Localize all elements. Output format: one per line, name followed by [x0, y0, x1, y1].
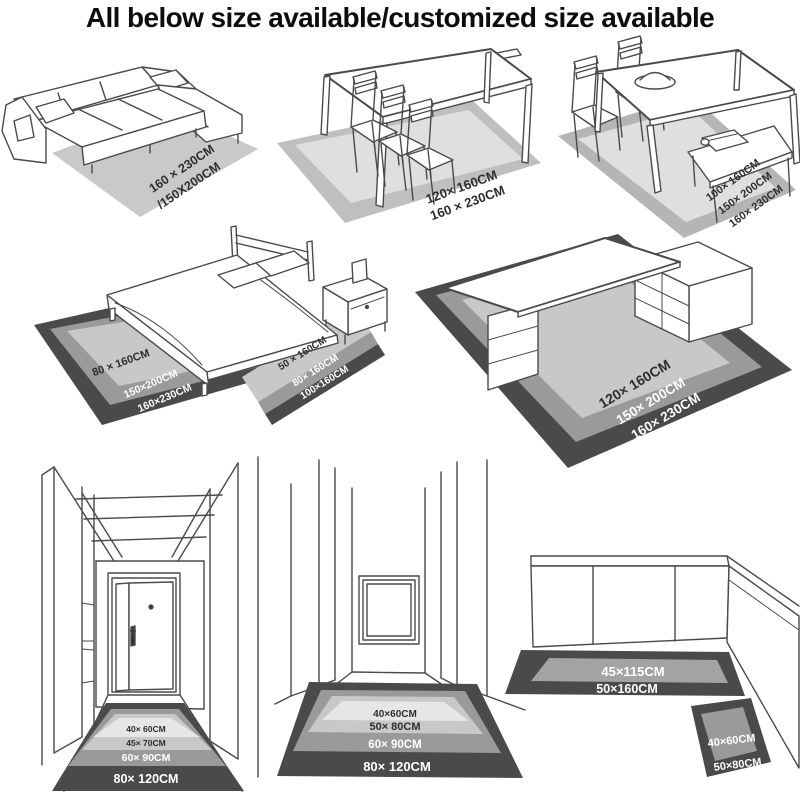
corridor-size-label-4: 80× 120CM — [363, 759, 431, 774]
bed-foot — [110, 308, 115, 321]
kitchen-runner-rug: 45×115CM 50×160CM — [505, 650, 745, 696]
hallway-size-label-1: 40× 60CM — [126, 724, 165, 734]
corridor-window-frame-inner — [367, 584, 411, 636]
table-leg — [734, 51, 741, 90]
table-leg — [522, 84, 532, 163]
scene-dining-table: 120× 160CM 160 × 230CM — [265, 45, 545, 242]
kitchen-mat-rug: 40×60CM 50×80CM — [691, 698, 771, 777]
kitchen-runner-size-label-2: 50×160CM — [596, 682, 658, 696]
scene-kitchen: 45×115CM 50×160CM 40×60CM 50×80CM — [505, 500, 800, 800]
corridor-size-label-3: 60× 90CM — [368, 739, 421, 751]
scene-bedroom: 80 × 160CM 150×200CM 160×230CM 50 × 160C… — [10, 225, 390, 440]
table-leg — [484, 52, 491, 103]
scene-living-room-sofa: 160 × 230CM /150X200CM — [0, 45, 270, 242]
corridor-size-label-1: 40×60CM — [373, 709, 417, 720]
hallway-size-label-2: 45× 70CM — [126, 738, 165, 748]
corridor-illustration — [275, 460, 525, 710]
bed-foot — [202, 383, 207, 396]
corridor-size-label-2: 50× 80CM — [369, 721, 420, 733]
nightstand-object — [352, 259, 367, 283]
hallway-rug: 40× 60CM 45× 70CM 60× 90CM 80× 120CM — [52, 703, 244, 791]
headboard-post — [307, 241, 314, 281]
desk-pedestal — [488, 302, 538, 390]
scene-corridor: 40×60CM 50× 80CM 60× 90CM 80× 120CM — [275, 460, 525, 800]
hallway-size-label-3: 60× 90CM — [122, 752, 171, 764]
door-leaf-left — [116, 583, 129, 691]
kitchen-runner-size-label-1: 45×115CM — [601, 664, 664, 679]
book-roll — [701, 139, 709, 145]
rug-size-chart: All below size available/customized size… — [0, 0, 800, 800]
scene-hallway-door: 40× 60CM 45× 70CM 60× 90CM 80× 120CM — [30, 455, 270, 800]
nightstand-knob — [366, 306, 369, 309]
hallway-size-label-4: 80× 120CM — [114, 772, 179, 786]
scene-dining-set: 100× 160CM 150× 200CM 160× 230CM — [540, 40, 800, 242]
scene-desk: 120× 160CM 150× 200CM 160× 230CM — [400, 220, 800, 470]
table-leg — [321, 76, 330, 135]
table-top — [596, 50, 794, 120]
counter-front — [531, 566, 729, 647]
door-knob — [131, 629, 135, 633]
page-title: All below size available/customized size… — [0, 2, 800, 34]
door-peephole — [149, 605, 153, 609]
